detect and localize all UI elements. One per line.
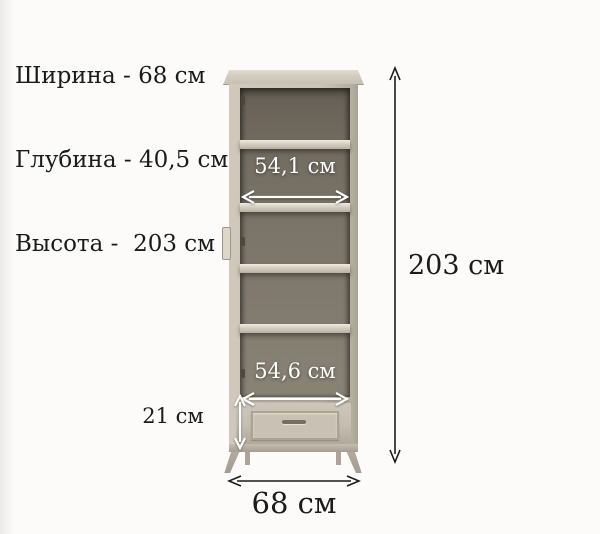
shelf	[240, 264, 350, 273]
hinge-dot	[241, 96, 245, 105]
spec-block: Ширина - 68 см Глубина - 40,5 см Высота …	[15, 6, 228, 314]
cabinet-back-leg	[245, 452, 250, 465]
inner-bottom-width-arrow	[241, 391, 349, 407]
shelf	[240, 324, 350, 333]
drawer-height-arrow	[233, 394, 247, 450]
cabinet-bottom-rail	[229, 444, 358, 452]
spec-height-label: Высота - 203 см	[15, 230, 228, 258]
drawer-handle	[282, 420, 306, 424]
cabinet-interior	[240, 88, 350, 397]
drawer-panel	[251, 411, 339, 440]
height-dimension-label: 203 см	[408, 250, 504, 281]
shelf	[240, 140, 350, 149]
cabinet-back-leg	[336, 452, 341, 465]
spec-depth-label: Глубина - 40,5 см	[15, 146, 228, 174]
inner-top-width-arrow	[241, 189, 349, 205]
width-dimension-label: 68 см	[227, 486, 361, 520]
door-handle	[222, 227, 231, 260]
drawer-front	[236, 403, 351, 444]
product-dimensions-diagram: Ширина - 68 см Глубина - 40,5 см Высота …	[0, 0, 600, 534]
inner-top-width-label: 54,1 см	[241, 154, 349, 178]
height-dimension-arrow	[388, 66, 402, 464]
cabinet-crown	[223, 70, 364, 85]
cabinet-leg	[224, 452, 240, 473]
spec-width-label: Ширина - 68 см	[15, 62, 228, 90]
drawer-height-label: 21 см	[140, 404, 206, 428]
hinge-dot	[241, 237, 245, 246]
inner-bottom-width-label: 54,6 см	[241, 359, 349, 383]
cabinet-leg	[346, 452, 362, 473]
